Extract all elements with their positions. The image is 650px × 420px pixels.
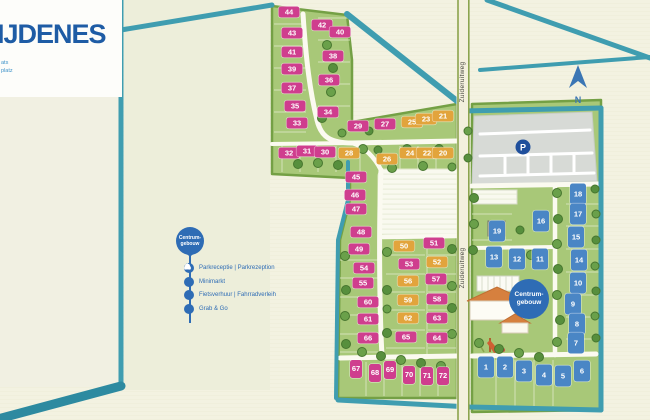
plot-marker-35[interactable]: 35 [285,101,306,112]
plot-marker-46[interactable]: 46 [345,190,366,201]
plot-marker-2[interactable]: 2 [497,357,513,378]
plot-marker-18[interactable]: 18 [570,184,586,205]
title-subtext: ats platz [1,59,122,75]
plot-marker-67[interactable]: 67 [350,360,362,378]
plot-marker-70[interactable]: 70 [403,366,415,384]
plot-marker-5[interactable]: 5 [555,366,571,387]
parking-lot [472,112,597,185]
plot-marker-4[interactable]: 4 [536,365,552,386]
plot-marker-17[interactable]: 17 [570,204,586,225]
legend-item-label: Parkreceptie | Parkrezeption [199,265,275,271]
plot-marker-38[interactable]: 38 [323,51,344,62]
plot-marker-20[interactable]: 20 [433,148,454,159]
bicycle-icon [184,290,194,300]
plot-marker-53[interactable]: 53 [399,259,420,270]
plot-marker-7[interactable]: 7 [568,333,584,354]
legend-item-label: Fietsverhuur | Fahrradverleih [199,292,276,298]
legend-item-label: Grab & Go [199,306,228,312]
svg-text:P: P [520,143,526,153]
plot-marker-9[interactable]: 9 [565,294,581,315]
svg-text:N: N [575,95,582,105]
plot-marker-61[interactable]: 61 [358,314,379,325]
plot-marker-29[interactable]: 29 [348,121,369,132]
legend-item-fietsverhuur: Fietsverhuur | Fahrradverleih [184,290,354,300]
plot-marker-60[interactable]: 60 [358,297,379,308]
road-label-zuideruitweg-bottom: Zuideruitweg [459,248,466,289]
plot-marker-16[interactable]: 16 [533,211,549,232]
plot-marker-72[interactable]: 72 [437,367,449,385]
shopping-basket-icon [184,277,194,287]
legend-item-minimarkt: Minimarkt [184,277,354,287]
plot-marker-52[interactable]: 52 [427,257,448,268]
plot-marker-65[interactable]: 65 [396,332,417,343]
plot-marker-43[interactable]: 43 [282,28,303,39]
plot-marker-45[interactable]: 45 [346,172,367,183]
plot-marker-26[interactable]: 26 [377,154,398,165]
legend-item-reception: Parkreceptie | Parkrezeption [184,263,354,273]
plot-marker-69[interactable]: 69 [384,361,396,379]
plot-marker-30[interactable]: 30 [315,147,336,158]
centrum-gebouw-badge: Centrum- gebouw [509,279,549,319]
plot-marker-55[interactable]: 55 [353,278,374,289]
plot-marker-37[interactable]: 37 [282,83,303,94]
north-arrow-icon: N [569,65,587,105]
plot-marker-64[interactable]: 64 [427,333,448,344]
plot-marker-66[interactable]: 66 [358,333,379,344]
plot-marker-34[interactable]: 34 [318,107,339,118]
legend-item-grab-go: Grab & Go [184,304,354,314]
plot-marker-28[interactable]: 28 [339,148,360,159]
plot-marker-63[interactable]: 63 [427,313,448,324]
plot-marker-27[interactable]: 27 [375,119,396,130]
title-subtext-line: platz [1,67,122,75]
plot-marker-68[interactable]: 68 [369,364,381,382]
plot-marker-33[interactable]: 33 [287,118,308,129]
park-title: IJDENES [0,19,122,50]
parking-icon: P [516,140,531,155]
plot-marker-14[interactable]: 14 [571,250,587,271]
cup-icon [184,304,194,314]
plot-marker-50[interactable]: 50 [394,241,415,252]
park-map-page: P N Zuideruitweg Zuideruitweg 4443424140… [0,0,650,420]
plot-marker-8[interactable]: 8 [569,314,585,335]
plot-marker-40[interactable]: 40 [330,27,351,38]
plot-marker-41[interactable]: 41 [282,47,303,58]
plot-marker-54[interactable]: 54 [354,263,375,274]
plot-marker-57[interactable]: 57 [426,274,447,285]
plot-marker-3[interactable]: 3 [516,361,532,382]
plot-marker-56[interactable]: 56 [398,276,419,287]
plot-marker-58[interactable]: 58 [427,294,448,305]
plot-marker-12[interactable]: 12 [509,249,525,270]
plot-marker-47[interactable]: 47 [346,204,367,215]
plot-marker-21[interactable]: 21 [433,111,454,122]
plot-marker-59[interactable]: 59 [398,295,419,306]
plot-marker-19[interactable]: 19 [489,221,505,242]
plot-marker-49[interactable]: 49 [349,244,370,255]
plot-marker-6[interactable]: 6 [574,361,590,382]
plot-marker-51[interactable]: 51 [424,238,445,249]
plot-marker-44[interactable]: 44 [279,7,300,18]
legend-item-label: Minimarkt [199,279,225,285]
plot-marker-11[interactable]: 11 [532,249,548,270]
plot-marker-15[interactable]: 15 [568,227,584,248]
title-panel: IJDENES ats platz [0,0,122,97]
plot-marker-62[interactable]: 62 [398,313,419,324]
plot-marker-10[interactable]: 10 [570,273,586,294]
plot-marker-39[interactable]: 39 [282,64,303,75]
plot-marker-1[interactable]: 1 [478,357,494,378]
plot-marker-48[interactable]: 48 [351,227,372,238]
plot-marker-71[interactable]: 71 [421,367,433,385]
plot-marker-13[interactable]: 13 [486,247,502,268]
plot-marker-36[interactable]: 36 [319,75,340,86]
legend-centrum-pin: Centrum- gebouw [176,227,204,255]
title-subtext-line: ats [1,59,122,67]
road-label-zuideruitweg-top: Zuideruitweg [459,62,466,103]
